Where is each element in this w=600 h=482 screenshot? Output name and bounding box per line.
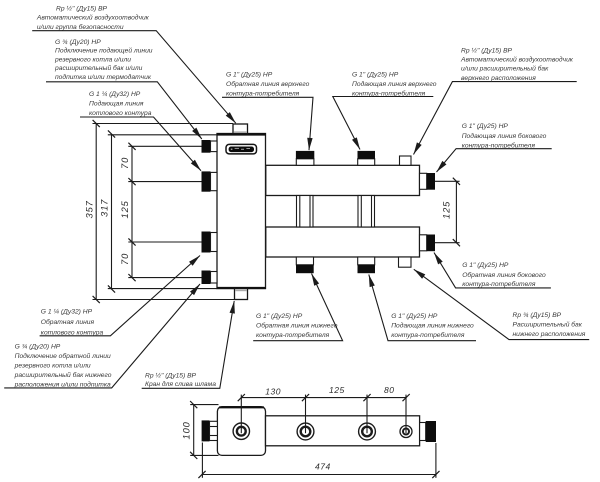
- svg-text:Автоматический воздухоотводчик: Автоматический воздухоотводчик: [36, 14, 150, 22]
- svg-text:контура-потребителя: контура-потребителя: [226, 90, 300, 98]
- svg-text:котлового контура: котлового контура: [41, 329, 104, 336]
- svg-text:G 1" (Ду25) НР: G 1" (Ду25) НР: [391, 313, 438, 320]
- svg-text:474: 474: [315, 461, 331, 471]
- svg-text:G 1 ¼ (Ду32) НР: G 1 ¼ (Ду32) НР: [41, 308, 93, 315]
- svg-text:70: 70: [120, 253, 130, 265]
- svg-text:резервного котла и/или: резервного котла и/или: [54, 56, 131, 63]
- svg-text:резервного котла и/или: резервного котла и/или: [14, 363, 91, 370]
- svg-text:Подающая линия верхнего: Подающая линия верхнего: [352, 80, 437, 88]
- svg-text:Подключение обратной линии: Подключение обратной линии: [15, 352, 111, 360]
- svg-text:подпитка и/или термодатчик: подпитка и/или термодатчик: [55, 73, 152, 81]
- svg-text:Расширительный бак: Расширительный бак: [513, 321, 583, 329]
- svg-text:Кран для слива шлама: Кран для слива шлама: [145, 380, 216, 388]
- svg-text:Обратная линия: Обратная линия: [41, 318, 95, 326]
- svg-text:125: 125: [120, 200, 130, 218]
- svg-text:Подающая линия: Подающая линия: [89, 100, 144, 108]
- svg-text:G 1" (Ду25) НР: G 1" (Ду25) НР: [256, 313, 303, 320]
- svg-text:контура-потребителя: контура-потребителя: [391, 331, 465, 339]
- svg-text:Подающая линия нижнего: Подающая линия нижнего: [391, 322, 474, 330]
- svg-text:G 1" (Ду25) НР: G 1" (Ду25) НР: [462, 262, 509, 269]
- svg-text:G 1" (Ду25) НР: G 1" (Ду25) НР: [462, 123, 509, 130]
- svg-text:Автоматический воздухоотводчик: Автоматический воздухоотводчик: [460, 56, 574, 64]
- svg-text:контура-потребителя: контура-потребителя: [256, 331, 330, 339]
- svg-text:G ¾ (Ду20) НР: G ¾ (Ду20) НР: [55, 39, 101, 46]
- svg-text:и/или группа безопасности: и/или группа безопасности: [37, 23, 124, 31]
- svg-text:и/или расширительный бак: и/или расширительный бак: [461, 65, 549, 73]
- svg-text:100: 100: [182, 421, 192, 439]
- svg-text:верхнего расположения: верхнего расположения: [461, 75, 536, 82]
- svg-text:расположения и/или подпитка: расположения и/или подпитка: [14, 380, 111, 388]
- svg-text:Обратная линия верхнего: Обратная линия верхнего: [226, 80, 310, 88]
- svg-text:G 1 ¼ (Ду32) НР: G 1 ¼ (Ду32) НР: [89, 91, 141, 98]
- svg-text:G 1" (Ду25) НР: G 1" (Ду25) НР: [352, 72, 399, 79]
- svg-text:G ¾ (Ду20) НР: G ¾ (Ду20) НР: [15, 343, 61, 350]
- svg-text:Обратная линия бокового: Обратная линия бокового: [462, 271, 546, 279]
- svg-text:357: 357: [84, 200, 94, 218]
- svg-text:125: 125: [329, 385, 345, 395]
- svg-text:317: 317: [100, 199, 110, 217]
- svg-text:Rp ½" (Ду15) ВР: Rp ½" (Ду15) ВР: [145, 371, 197, 379]
- svg-text:Подключение подающей линии: Подключение подающей линии: [55, 47, 153, 55]
- svg-text:Rp ½" (Ду15) ВР: Rp ½" (Ду15) ВР: [56, 4, 108, 12]
- svg-text:130: 130: [265, 386, 281, 396]
- svg-text:контура-потребителя: контура-потребителя: [352, 89, 426, 97]
- svg-text:125: 125: [442, 201, 452, 219]
- svg-text:нижнего расположения: нижнего расположения: [513, 331, 586, 338]
- svg-text:Rp ¾ (Ду15) ВР: Rp ¾ (Ду15) ВР: [513, 312, 562, 319]
- svg-text:Обратная линия нижнего: Обратная линия нижнего: [256, 322, 338, 330]
- svg-text:80: 80: [384, 385, 394, 395]
- svg-text:Rp ½" (Ду15) ВР: Rp ½" (Ду15) ВР: [461, 46, 513, 54]
- svg-text:котлового контура: котлового контура: [89, 110, 152, 117]
- svg-text:контура-потребителя: контура-потребителя: [462, 141, 536, 149]
- svg-text:Подающая линия бокового: Подающая линия бокового: [462, 132, 547, 140]
- svg-text:70: 70: [120, 157, 130, 169]
- svg-text:G 1" (Ду25) НР: G 1" (Ду25) НР: [226, 72, 273, 79]
- svg-text:расширительный бак и/или: расширительный бак и/или: [54, 64, 143, 72]
- svg-text:контура-потребителя: контура-потребителя: [462, 280, 536, 288]
- svg-text:расширительный бак нижнего: расширительный бак нижнего: [14, 371, 112, 379]
